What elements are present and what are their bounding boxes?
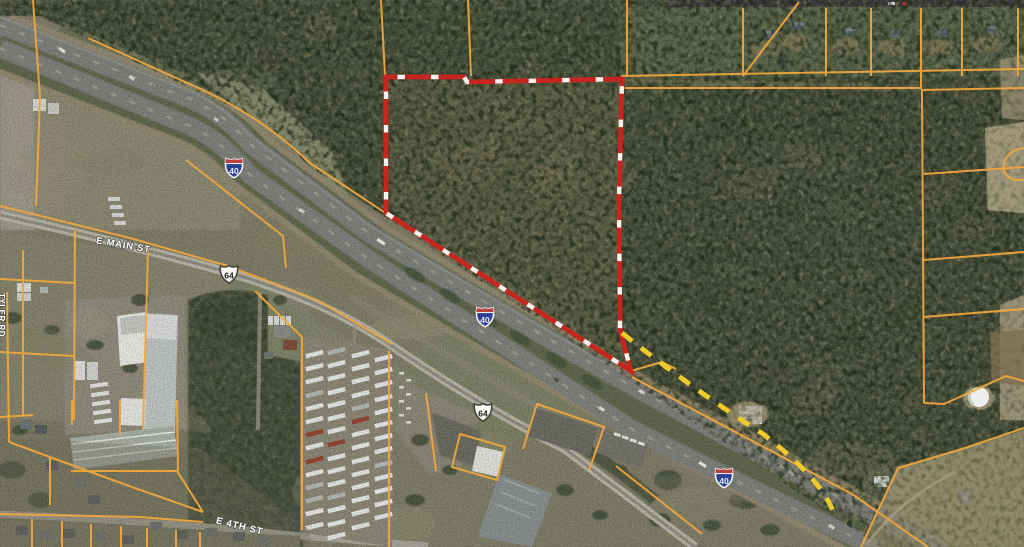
svg-text:64: 64 [478,408,488,418]
svg-text:TYLER RD: TYLER RD [0,293,6,337]
svg-text:40: 40 [480,315,490,325]
svg-text:40: 40 [229,166,239,176]
svg-text:64: 64 [224,270,234,280]
svg-text:40: 40 [719,476,729,486]
